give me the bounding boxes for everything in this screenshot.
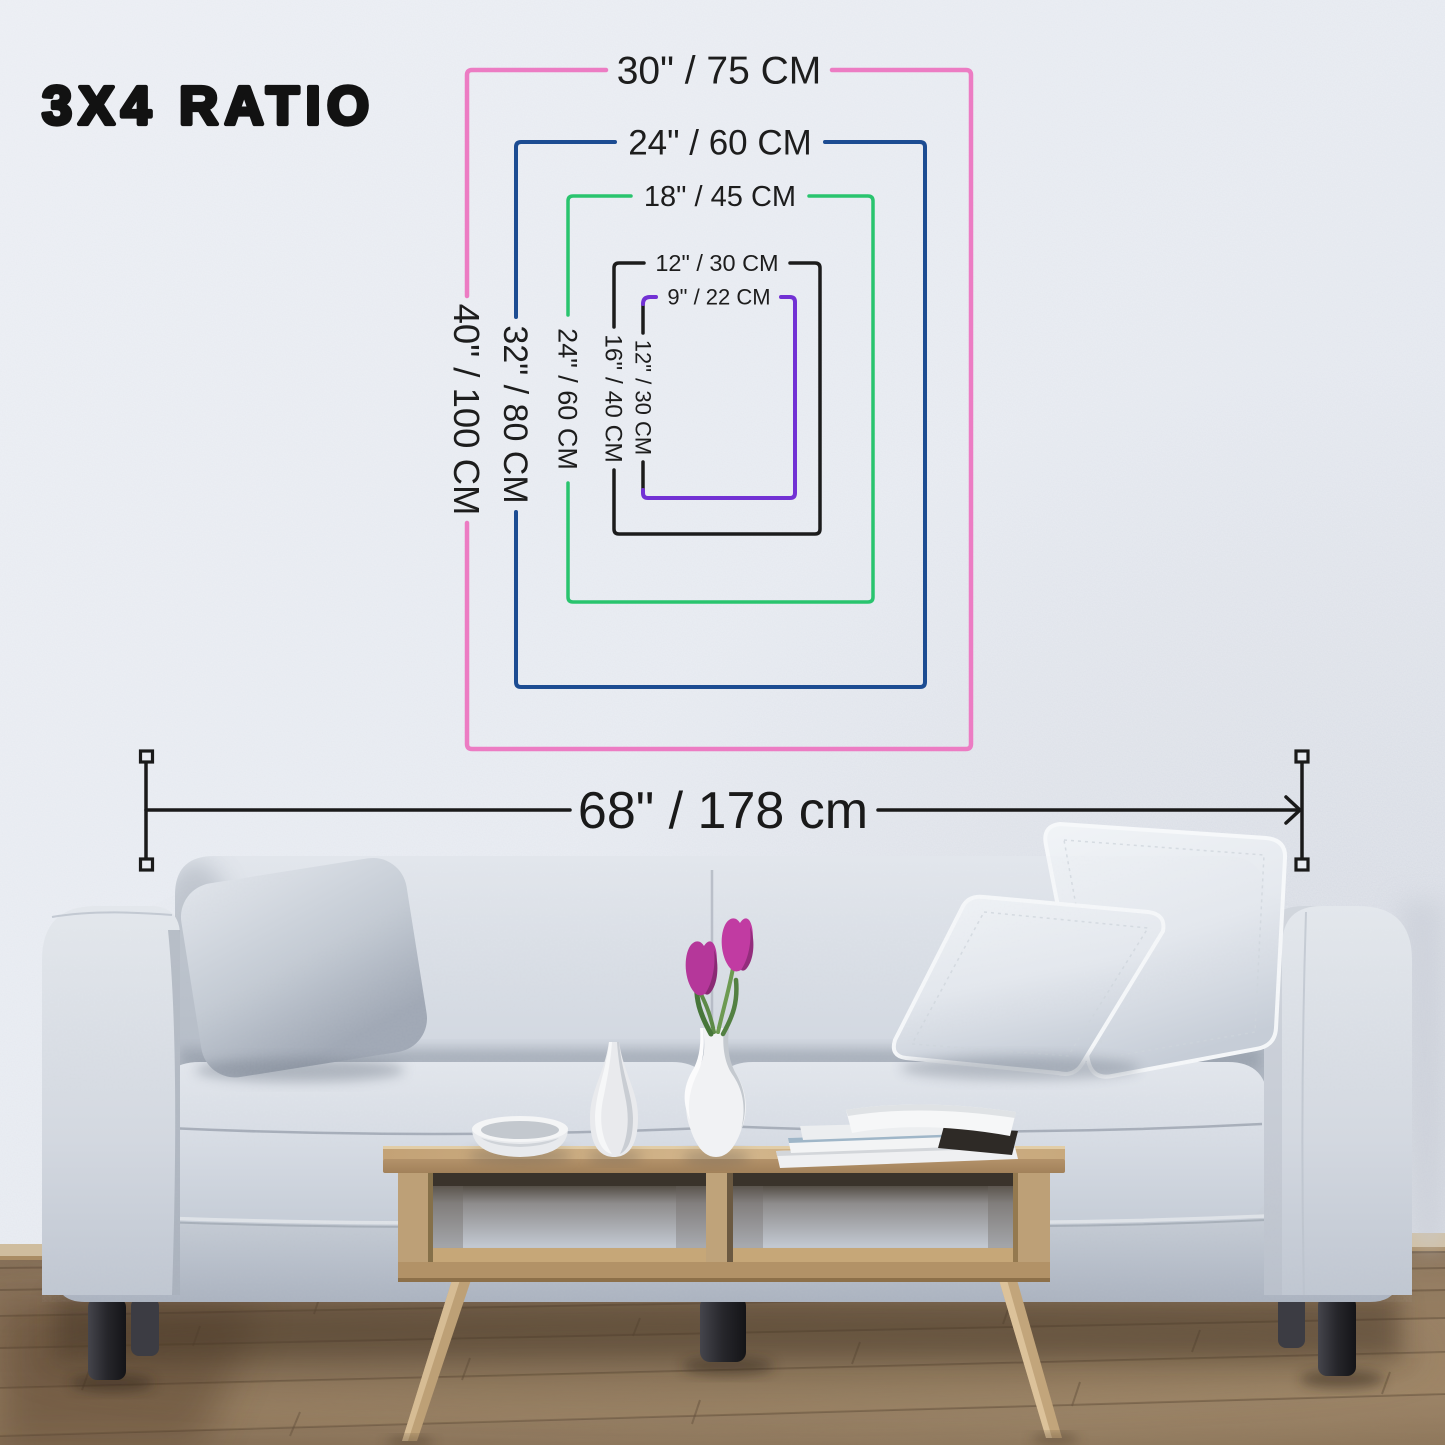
svg-text:12" / 30 CM: 12" / 30 CM [630, 340, 655, 455]
svg-text:12" / 30 CM: 12" / 30 CM [655, 250, 778, 276]
svg-text:30" / 75 CM: 30" / 75 CM [617, 50, 822, 93]
svg-text:3X4 RATIO: 3X4 RATIO [42, 76, 376, 136]
svg-text:24" / 60 CM: 24" / 60 CM [628, 123, 812, 162]
svg-text:40" / 100 CM: 40" / 100 CM [446, 304, 487, 516]
svg-text:9" / 22 CM: 9" / 22 CM [667, 285, 770, 310]
svg-text:24" / 60 CM: 24" / 60 CM [553, 328, 583, 470]
svg-text:16" / 40 CM: 16" / 40 CM [599, 334, 626, 463]
svg-text:32" / 80 CM: 32" / 80 CM [496, 325, 534, 503]
svg-text:18" / 45 CM: 18" / 45 CM [644, 181, 796, 213]
svg-text:68" / 178 cm: 68" / 178 cm [578, 782, 868, 840]
